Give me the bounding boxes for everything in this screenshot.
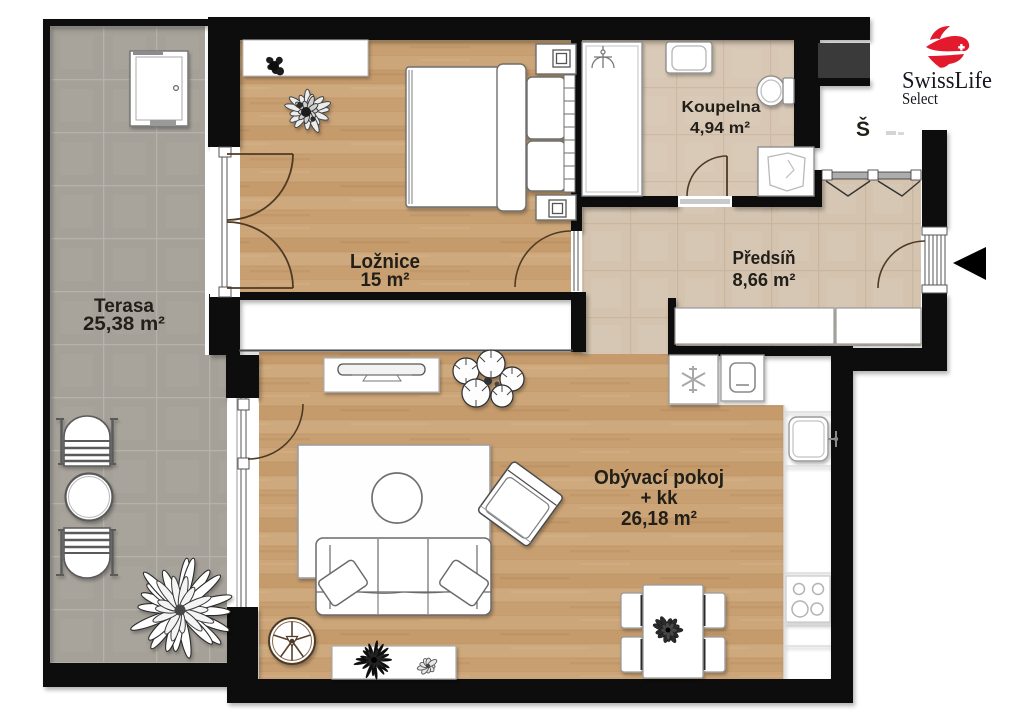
- svg-text:25,38 m²: 25,38 m²: [83, 314, 165, 335]
- svg-text:26,18 m²: 26,18 m²: [621, 508, 697, 530]
- svg-text:Š: Š: [856, 117, 870, 141]
- svg-text:+ kk: + kk: [641, 488, 678, 509]
- svg-text:8,66 m²: 8,66 m²: [733, 270, 796, 290]
- svg-text:Obývací pokoj: Obývací pokoj: [594, 467, 724, 489]
- svg-text:Select: Select: [902, 89, 938, 108]
- svg-text:Předsíň: Předsíň: [733, 248, 796, 268]
- svg-text:Koupelna: Koupelna: [682, 99, 761, 116]
- svg-text:15 m²: 15 m²: [361, 270, 410, 291]
- svg-text:4,94 m²: 4,94 m²: [690, 120, 750, 137]
